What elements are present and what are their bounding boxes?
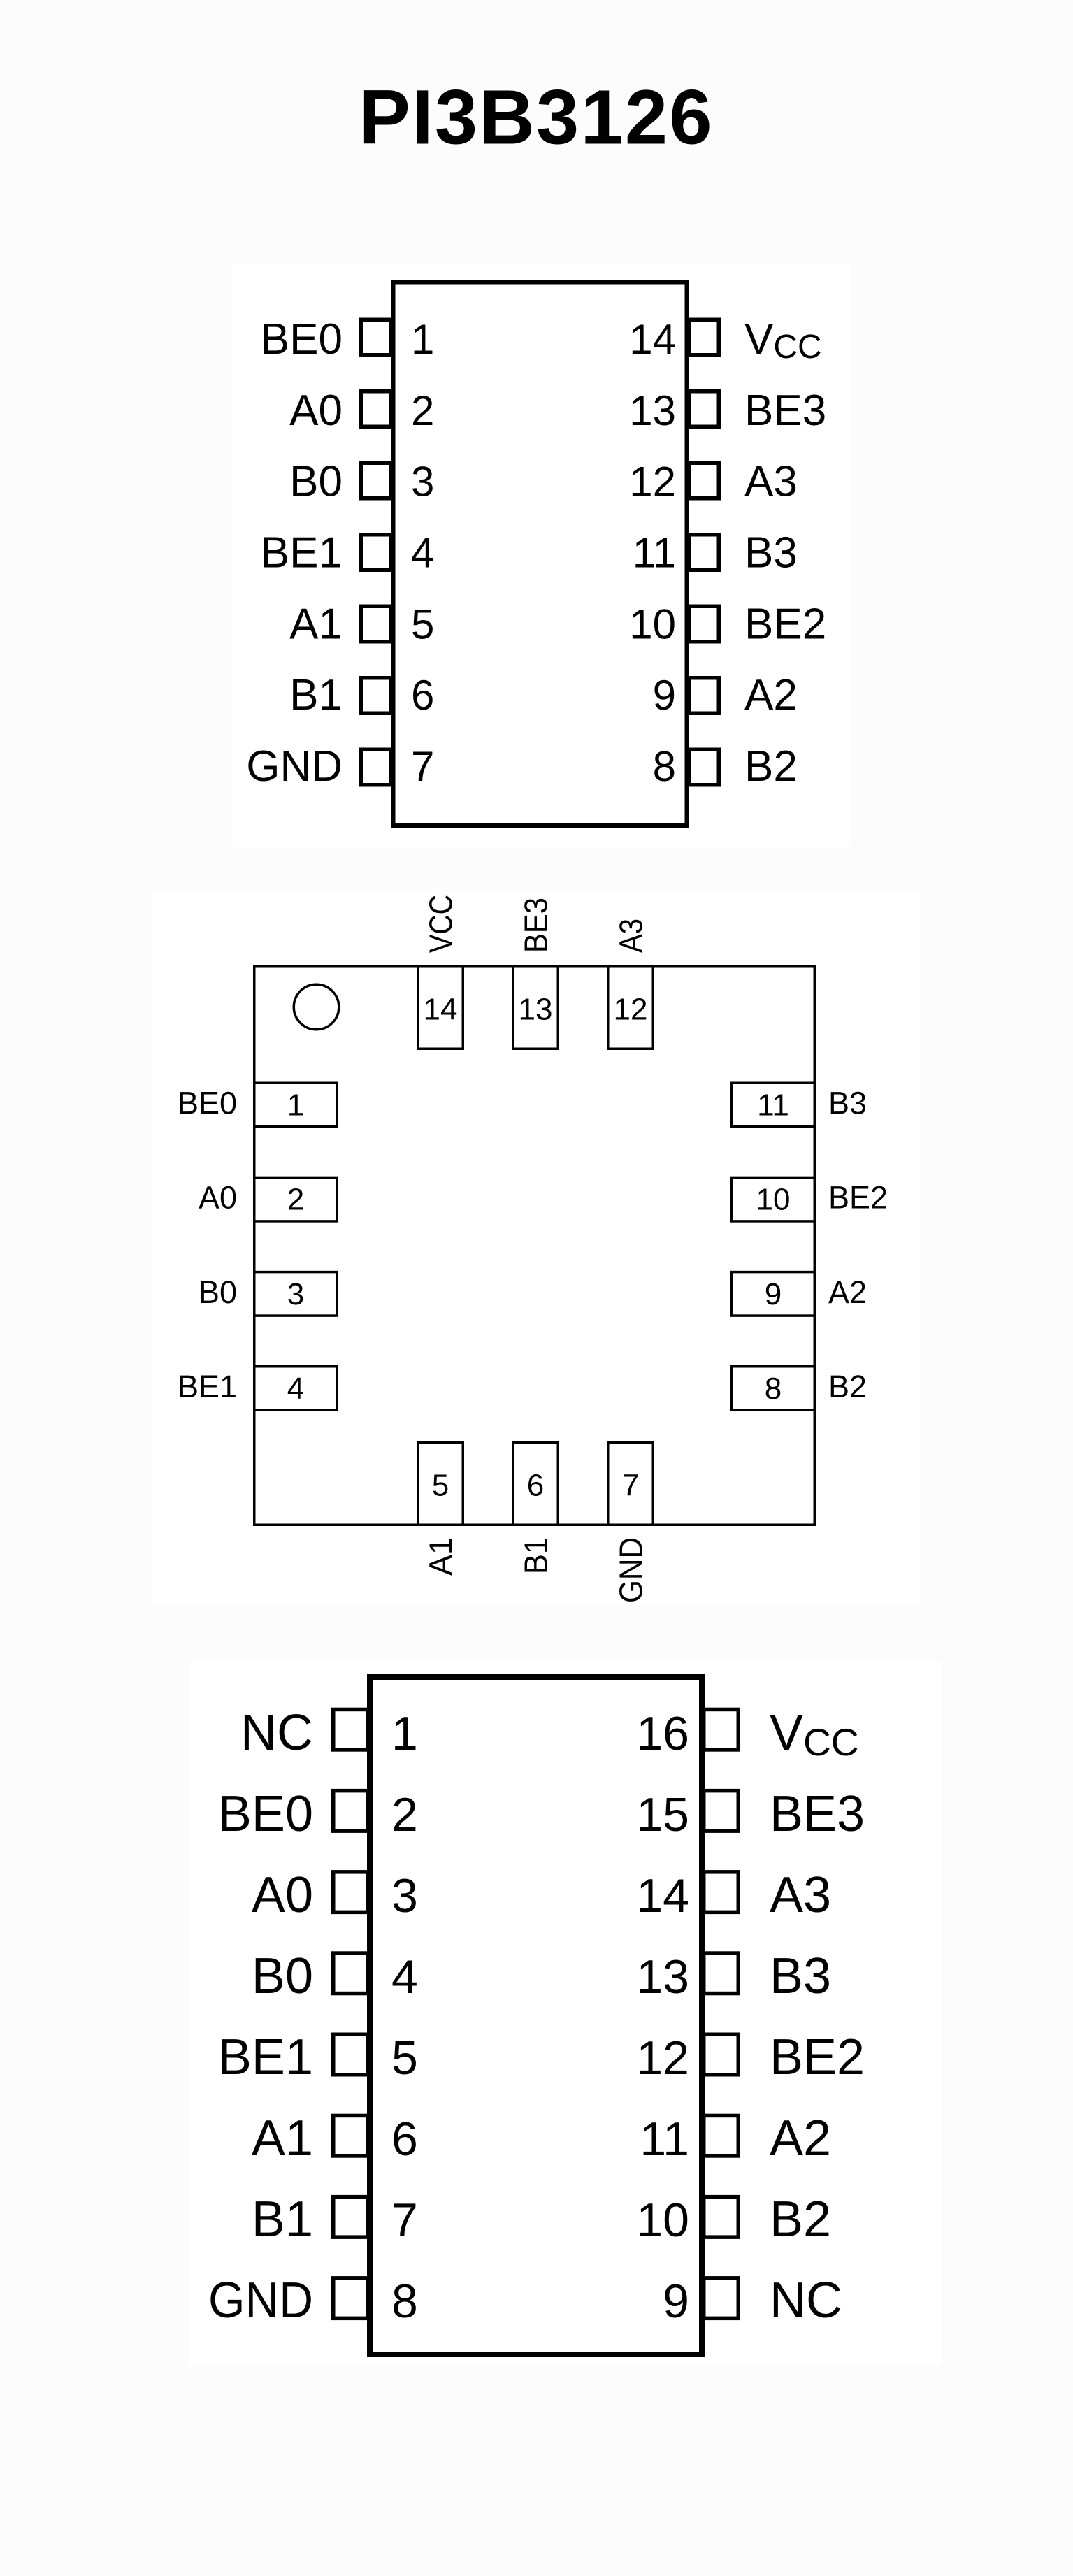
svg-text:VCC: VCC (423, 895, 459, 953)
svg-text:14: 14 (424, 993, 458, 1027)
svg-text:14: 14 (636, 1869, 689, 1922)
svg-text:9: 9 (663, 2275, 689, 2328)
svg-text:B2: B2 (828, 1369, 867, 1404)
svg-text:3: 3 (391, 1869, 418, 1922)
svg-text:B1: B1 (518, 1537, 554, 1574)
svg-text:A2: A2 (770, 2110, 831, 2166)
svg-text:9: 9 (765, 1277, 782, 1311)
svg-text:GND: GND (613, 1537, 649, 1603)
svg-text:BE1: BE1 (218, 2029, 313, 2085)
svg-text:13: 13 (629, 387, 676, 434)
svg-text:12: 12 (636, 2031, 689, 2085)
svg-text:8: 8 (653, 743, 676, 790)
svg-text:A3: A3 (770, 1867, 831, 1923)
svg-text:16: 16 (636, 1707, 689, 1760)
svg-text:3: 3 (411, 459, 434, 505)
svg-text:4: 4 (391, 1950, 418, 2003)
svg-text:BE0: BE0 (178, 1086, 237, 1121)
svg-text:5: 5 (432, 1469, 449, 1503)
svg-text:10: 10 (629, 600, 676, 647)
svg-text:8: 8 (391, 2275, 418, 2328)
svg-text:A0: A0 (252, 1867, 313, 1923)
svg-text:BE3: BE3 (770, 1786, 865, 1842)
svg-text:A1: A1 (423, 1537, 459, 1576)
svg-text:1: 1 (391, 1707, 418, 1760)
svg-text:8: 8 (765, 1372, 782, 1406)
svg-text:10: 10 (756, 1183, 791, 1217)
svg-text:15: 15 (636, 1788, 689, 1841)
svg-text:12: 12 (629, 459, 676, 505)
svg-text:GND: GND (208, 2273, 313, 2329)
svg-text:B0: B0 (289, 458, 343, 506)
svg-text:A3: A3 (744, 458, 798, 506)
svg-text:A1: A1 (252, 2110, 313, 2166)
svg-text:10: 10 (636, 2194, 689, 2247)
svg-text:6: 6 (527, 1469, 544, 1503)
svg-text:BE0: BE0 (218, 1786, 313, 1842)
svg-text:B3: B3 (744, 528, 798, 577)
svg-text:B2: B2 (744, 742, 798, 791)
svg-text:1: 1 (287, 1088, 304, 1123)
svg-text:7: 7 (622, 1469, 639, 1503)
svg-text:B2: B2 (770, 2192, 831, 2247)
svg-text:NC: NC (240, 1705, 313, 1761)
svg-text:BE2: BE2 (770, 2029, 865, 2085)
svg-text:4: 4 (287, 1372, 304, 1406)
svg-text:3: 3 (287, 1277, 304, 1311)
svg-text:A0: A0 (199, 1180, 237, 1216)
svg-text:B3: B3 (828, 1086, 867, 1121)
svg-text:B1: B1 (252, 2192, 313, 2247)
svg-text:4: 4 (411, 529, 434, 576)
svg-text:6: 6 (391, 2113, 418, 2166)
svg-text:11: 11 (633, 529, 676, 576)
svg-text:BE3: BE3 (744, 387, 826, 435)
svg-text:5: 5 (391, 2031, 418, 2085)
svg-text:BE1: BE1 (261, 528, 343, 577)
svg-text:2: 2 (391, 1788, 418, 1841)
svg-text:GND: GND (246, 742, 343, 791)
svg-text:A2: A2 (744, 671, 798, 719)
svg-text:6: 6 (411, 672, 434, 719)
svg-text:2: 2 (287, 1183, 304, 1217)
svg-text:7: 7 (391, 2194, 418, 2247)
svg-text:5: 5 (411, 600, 434, 647)
svg-text:A2: A2 (828, 1274, 867, 1310)
svg-text:B0: B0 (199, 1274, 237, 1310)
svg-text:2: 2 (411, 387, 434, 434)
svg-text:BE2: BE2 (828, 1180, 888, 1216)
svg-text:13: 13 (636, 1950, 689, 2003)
svg-text:7: 7 (411, 743, 434, 790)
svg-text:BE1: BE1 (178, 1369, 237, 1404)
svg-text:A1: A1 (289, 600, 343, 648)
svg-text:11: 11 (640, 2113, 689, 2166)
svg-text:BE0: BE0 (261, 315, 343, 364)
svg-text:B1: B1 (289, 671, 343, 719)
svg-text:A0: A0 (289, 387, 343, 435)
svg-text:13: 13 (519, 993, 553, 1027)
svg-text:B0: B0 (252, 1948, 313, 2004)
svg-text:A3: A3 (613, 919, 649, 953)
svg-text:NC: NC (770, 2273, 842, 2329)
svg-text:9: 9 (653, 672, 676, 719)
svg-text:14: 14 (629, 316, 676, 363)
svg-text:11: 11 (757, 1088, 789, 1123)
svg-text:12: 12 (614, 993, 648, 1027)
svg-text:1: 1 (411, 316, 434, 363)
svg-text:B3: B3 (770, 1948, 831, 2004)
svg-text:BE3: BE3 (518, 898, 554, 953)
svg-text:BE2: BE2 (744, 600, 826, 648)
